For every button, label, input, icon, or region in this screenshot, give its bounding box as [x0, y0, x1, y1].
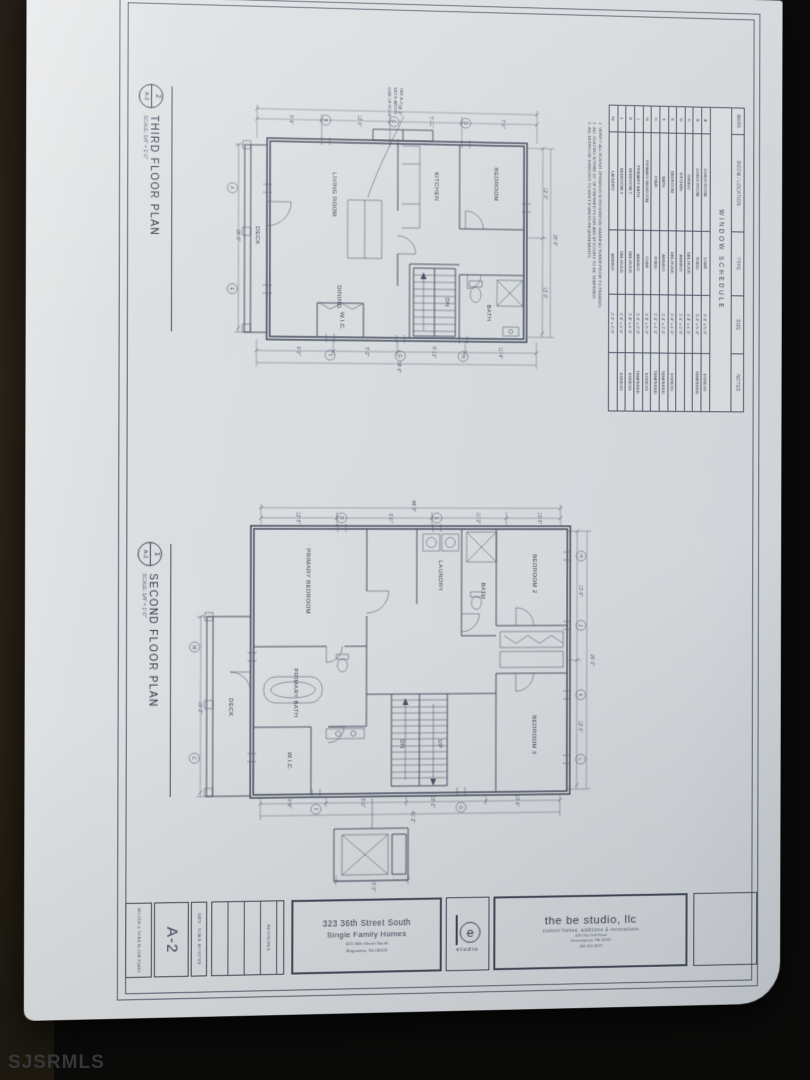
doors	[267, 201, 484, 310]
schedule-cell-mark: B	[693, 107, 701, 134]
schedule-row: H PRIMARY BEDROOM CSMT 2'-8" x 5'-0" EGR…	[642, 106, 651, 411]
dimension-label: 44'-0"	[411, 500, 416, 512]
schedule-cell-size: 2'-0" x 2'-0"	[609, 294, 618, 352]
annotation-line: SEE A-4	[399, 88, 404, 105]
schedule-cell-room: DINING	[685, 133, 694, 231]
schedule-title: WINDOW SCHEDULE	[709, 107, 731, 411]
schedule-cell-type: FIXED	[651, 230, 660, 294]
schedule-note: 3. ALL BEDROOM WINDOWS TO MEET EGRESS RE…	[586, 122, 592, 390]
sheet-meta-box: DATE · SCALE: AS NOTED	[191, 902, 208, 977]
window-mark-label: H	[460, 355, 465, 358]
schedule-header: NOTES	[731, 354, 744, 412]
roof-hatch-detail	[334, 798, 408, 881]
second-floor-plan-label: 1 A-2 SECOND FLOOR PLAN SCALE: 1/4" = 1'…	[132, 542, 168, 806]
schedule-cell-size: 2'-8" x 4'-6"	[617, 294, 626, 352]
plan-title: THIRD FLOOR PLAN	[148, 115, 160, 236]
window-mark-label: L	[578, 758, 583, 761]
dimension-label: 8'-10"	[431, 346, 436, 358]
photo-of-architectural-sheet: { "watermark": "SJSRMLS", "labels": { "t…	[0, 0, 810, 1080]
room-label: LAUNDRY	[437, 560, 443, 591]
schedule-cell-notes	[676, 353, 685, 411]
firm-name: the be studio, llc	[545, 913, 637, 927]
window-mark-label: C	[391, 120, 396, 124]
dimension-label: 34'-6"	[396, 361, 401, 373]
empty-stamp-box	[693, 892, 757, 966]
room-label: PRIMARY BEDROOM	[304, 548, 310, 614]
schedule-cell-mark: K	[626, 105, 635, 132]
schedule-cell-mark: G	[651, 106, 659, 133]
window-marks	[247, 524, 571, 798]
dimension-label: 12'-6"	[578, 721, 583, 733]
room-label: DN	[443, 298, 449, 308]
schedule-cell-notes: TEMPERED	[693, 353, 702, 411]
dimension-label: 11'-2"	[476, 512, 481, 524]
drawing-sheet: 2 A-2 THIRD FLOOR PLAN SCALE: 1/4" = 1'-…	[24, 0, 783, 1021]
dimension-label: 6'-4"	[287, 799, 292, 809]
laundry-appliances	[423, 534, 459, 551]
third-floor-plan-label: 2 A-2 THIRD FLOOR PLAN SCALE: 1/4" = 1'-…	[133, 83, 169, 337]
sheet-number-box: A-2	[154, 902, 189, 978]
interior-walls	[253, 529, 567, 795]
room-label: DINING	[335, 285, 341, 309]
window-schedule: WINDOW SCHEDULE MARK ROOM / LOCATION TYP…	[608, 105, 745, 397]
schedule-cell-mark: J	[634, 106, 642, 133]
schedule-cell-notes: TEMPERED	[659, 353, 668, 411]
schedule-cell-type: DBL HUNG	[617, 230, 626, 294]
schedule-cell-mark: F	[660, 106, 668, 133]
leader-line	[368, 115, 404, 198]
dimension-label: 12'-8"	[295, 512, 300, 524]
dimension-label: 13'-6"	[578, 585, 583, 597]
room-label: BEDROOM 2	[531, 554, 537, 594]
schedule-row: B LIVING ROOM FIXED 3'-0" x 5'-0" TEMPER…	[693, 107, 702, 412]
project-addr2: Brigantine, NJ 08203	[346, 947, 387, 953]
window-mark-label: M	[192, 645, 197, 649]
schedule-cell-type: DBL HUNG	[626, 230, 635, 294]
schedule-cell-size: 2'-6" x 2'-0"	[676, 295, 685, 353]
schedule-cell-size: 2'-8" x 4'-6"	[684, 295, 693, 353]
schedule-row: C DINING DBL HUNG 2'-8" x 4'-6"	[684, 107, 693, 412]
plan-title: SECOND FLOOR PLAN	[147, 573, 159, 708]
schedule-header: TYPE	[731, 232, 744, 296]
sheet-meta-vertical: DATE · SCALE: AS NOTED	[197, 913, 201, 965]
firm-tagline: custom homes, additions & renovations	[542, 926, 639, 933]
firm-box: the be studio, llc custom homes, additio…	[493, 893, 687, 970]
schedule-cell-room: PRIMARY BEDROOM	[643, 133, 652, 231]
firm-phone: 484.452.6879	[579, 944, 602, 949]
schedule-cell-room: PRIMARY BATH	[634, 132, 643, 230]
schedule-cell-notes: EGRESS	[701, 353, 710, 411]
dimension-label: 6'-0"	[371, 882, 376, 892]
dimension-label: 11'-4"	[498, 347, 503, 359]
detail-bubble: 2 A-2	[139, 84, 164, 109]
room-label: BATH	[485, 304, 491, 321]
project-box: 323 36th Street South Single Family Home…	[291, 897, 442, 974]
window-mark-label: G	[398, 354, 403, 358]
dimension-label: 12'-6"	[357, 115, 362, 127]
dimension-label: 13'-6"	[514, 795, 519, 807]
dimension-label: 5'-11"	[429, 117, 434, 129]
schedule-cell-mark: C	[685, 107, 693, 134]
schedule-cell-type: CSMT	[643, 230, 652, 294]
window-mark-label: D	[463, 121, 468, 125]
schedule-cell-mark: H	[643, 106, 651, 133]
dimension-label: 25'-0"	[552, 234, 557, 246]
annotation-line: LINE OF ROOF	[387, 87, 392, 117]
schedule-row: F BATH AWNING 2'-0" x 2'-0" TEMPERED	[659, 106, 668, 411]
room-label: DN	[398, 739, 404, 749]
schedule-cell-size: 2'-0" x 4'-0"	[651, 295, 660, 353]
room-label: W.I.C.	[286, 752, 292, 771]
schedule-note: 1. VERIFY ALL ROUGH OPENINGS WITH WINDOW…	[597, 122, 603, 389]
dimension-label: 8'-4"	[288, 115, 293, 125]
window-mark-label: B	[323, 119, 328, 122]
mls-watermark: SJSRMLS	[8, 1052, 105, 1074]
window-mark-label: F	[313, 808, 318, 811]
dimension-label: 41'-2"	[410, 811, 415, 823]
schedule-cell-room: BEDROOM 3	[617, 132, 626, 230]
schedule-row: M LAUNDRY AWNING 2'-0" x 2'-0"	[608, 105, 617, 411]
detail-sheet: A-2	[141, 85, 151, 108]
kitchen-counter	[348, 145, 420, 259]
schedule-cell-size: 2'-8" x 4'-6"	[668, 295, 677, 353]
schedule-cell-room: LAUNDRY	[609, 132, 618, 230]
schedule-cell-type: AWNING	[609, 230, 618, 294]
revisions-label: REVISIONS	[265, 924, 270, 951]
window-mark-label: E	[229, 287, 234, 290]
shower	[497, 280, 523, 306]
roof-chase	[373, 129, 433, 141]
firm-addr1: 403 Otto Dell Road	[575, 933, 607, 938]
schedule-cell-type: AWNING	[634, 230, 643, 294]
third-floor-plan-drawing: LINE OF ROOF DECK ABOVE SEE A-4	[195, 81, 596, 398]
schedule-cell-type: FIXED	[693, 231, 702, 295]
schedule-row: G STAIR FIXED 2'-0" x 4'-0" TEMPERED	[651, 106, 660, 411]
second-floor-plan-drawing: D E H J K L M C F G PRIMARY BEDROOM LAUN…	[174, 495, 605, 896]
schedule-cell-mark: M	[609, 105, 618, 132]
schedule-cell-notes: TEMPERED	[634, 353, 643, 411]
schedule-cell-size: 2'-0" x 2'-0"	[659, 295, 668, 353]
logo-word: studio	[456, 947, 479, 953]
room-label: BEDROOM 3	[530, 715, 536, 755]
be-studio-logo-icon: e	[453, 915, 483, 945]
schedule-header: MARK	[732, 108, 745, 135]
schedule-header-row: MARK ROOM / LOCATION TYPE SIZE NOTES	[731, 108, 744, 412]
schedule-cell-size: 2'-8" x 5'-0"	[642, 295, 651, 353]
schedule-header: SIZE	[731, 296, 744, 354]
schedule-cell-type: CSMT	[701, 231, 710, 295]
project-addr1: 323 36th Street South	[345, 940, 388, 946]
dimension-label: 5'-0"	[360, 798, 365, 808]
dimension-label: 9'-2"	[296, 346, 301, 356]
schedule-cell-size: 3'-0" x 5'-0"	[693, 295, 702, 353]
sheet-name-vertical: SECOND & THIRD FLOOR PLANS	[136, 907, 140, 973]
schedule-cell-notes: EGRESS	[667, 353, 676, 411]
dimension-label: 5'-2"	[364, 347, 369, 357]
window-mark-label: C	[191, 757, 196, 761]
schedule-row: K BEDROOM 2 DBL HUNG 2'-8" x 4'-6" EGRES…	[625, 105, 634, 411]
logo-box: e studio	[446, 897, 490, 972]
schedule-cell-type: DBL HUNG	[668, 231, 677, 295]
dimension-label: 34'-6"	[397, 104, 402, 116]
schedule-notes: 1. VERIFY ALL ROUGH OPENINGS WITH WINDOW…	[583, 122, 603, 390]
schedule-cell-room: LIVING ROOM	[701, 134, 710, 232]
detail-number: 2	[151, 85, 162, 108]
window-mark-label: J	[578, 624, 583, 626]
schedule-cell-room: BATH	[660, 133, 669, 231]
schedule-cell-room: LIVING ROOM	[693, 134, 702, 232]
shower	[467, 532, 497, 562]
dimension-label: 7'-9"	[500, 119, 505, 129]
title-block: SECOND & THIRD FLOOR PLANS A-2 DATE · SC…	[122, 892, 759, 980]
sheet-name-box: SECOND & THIRD FLOOR PLANS	[125, 903, 152, 979]
dimension-label: 12'-0"	[543, 188, 548, 200]
schedule-cell-mark: L	[618, 105, 627, 132]
detail-sheet: A-2	[140, 543, 150, 565]
schedule-cell-room: STAIR	[651, 133, 660, 231]
schedule-note: 2. ALL GLAZING WITHIN 18" OF FINISHED FL…	[591, 122, 597, 390]
window-mark-label: D	[339, 516, 344, 520]
room-label: BATH	[479, 582, 485, 599]
window-mark-label: G	[458, 806, 463, 810]
dimension-label: 13'-0"	[542, 287, 547, 299]
revisions-box: REVISIONS	[211, 900, 284, 976]
room-label: KITCHEN	[433, 172, 439, 201]
room-label: W.I.C.	[338, 312, 344, 331]
schedule-header: ROOM / LOCATION	[731, 134, 744, 232]
window-mark-label: H	[578, 554, 583, 557]
schedule-cell-notes: EGRESS	[625, 353, 634, 411]
schedule-cell-notes: TEMPERED	[651, 353, 660, 411]
dimension-label: 16'-2"	[198, 702, 203, 714]
schedule-cell-type: AWNING	[676, 231, 685, 295]
room-label: DECK	[227, 698, 233, 716]
logo-letter: e	[466, 925, 473, 940]
project-line2: Single Family Homes	[327, 929, 407, 940]
window-mark-bubbles: D E H J K L M C F G	[189, 513, 586, 816]
project-line1: 323 36th Street South	[323, 918, 411, 929]
dimension-label: 9'-6"	[388, 513, 393, 523]
window-mark-label: A	[230, 186, 235, 190]
window-mark-label: K	[578, 693, 583, 697]
schedule-cell-size: 2'-0" x 2'-0"	[634, 294, 643, 352]
schedule-cell-notes: EGRESS	[642, 353, 651, 411]
exterior-walls	[250, 526, 570, 798]
firm-addr2: Downingtown, PA 19335	[571, 938, 611, 943]
schedule-cell-room: KITCHEN	[676, 133, 685, 231]
schedule-cell-room: BEDROOM	[668, 133, 677, 231]
dimension-label: 16'-2"	[430, 796, 435, 808]
room-label: DECK	[254, 226, 260, 244]
schedule-row: L BEDROOM 3 DBL HUNG 2'-8" x 4'-6" EGRES…	[617, 105, 626, 411]
dimension-label: 10'-8"	[537, 512, 542, 524]
schedule-cell-notes	[684, 353, 693, 411]
dimension-label: 25'-0"	[235, 229, 240, 241]
schedule-cell-notes	[608, 353, 617, 411]
schedule-cell-size: 3'-0" x 5'-0"	[701, 295, 710, 353]
closets	[500, 631, 563, 667]
schedule-cell-size: 2'-8" x 4'-6"	[625, 294, 634, 352]
schedule-row: J PRIMARY BATH AWNING 2'-0" x 2'-0" TEMP…	[634, 106, 643, 412]
bathroom-fixtures	[469, 280, 523, 336]
schedule-body: A LIVING ROOM CSMT 3'-0" x 5'-0" EGRESS …	[608, 105, 710, 412]
room-label: UP	[436, 739, 442, 748]
sheet-number: A-2	[163, 926, 180, 953]
room-label: BEDROOM	[492, 168, 498, 202]
schedule-row: E BEDROOM DBL HUNG 2'-8" x 4'-6" EGRESS	[667, 106, 676, 411]
window-mark-label: F	[327, 354, 332, 357]
schedule-cell-type: AWNING	[659, 231, 668, 295]
schedule-cell-mark: E	[668, 106, 676, 133]
detail-number: 1	[150, 543, 161, 565]
schedule-cell-room: BEDROOM 2	[626, 132, 635, 230]
schedule-cell-mark: D	[677, 107, 685, 134]
schedule-row: A LIVING ROOM CSMT 3'-0" x 5'-0" EGRESS	[701, 107, 710, 411]
schedule-cell-mark: A	[702, 107, 710, 134]
room-label: LIVING ROOM	[331, 172, 337, 217]
schedule-cell-type: DBL HUNG	[685, 231, 694, 295]
kitchen-island	[348, 200, 382, 259]
detail-bubble: 1 A-2	[138, 542, 163, 566]
dimension-label: 26'-0"	[590, 654, 595, 666]
schedule-row: D KITCHEN AWNING 2'-6" x 2'-0"	[676, 107, 685, 412]
window-mark-label: E	[434, 517, 439, 520]
doors	[230, 591, 534, 744]
schedule-cell-notes: EGRESS	[617, 353, 626, 411]
room-label: PRIMARY BATH	[292, 668, 298, 717]
